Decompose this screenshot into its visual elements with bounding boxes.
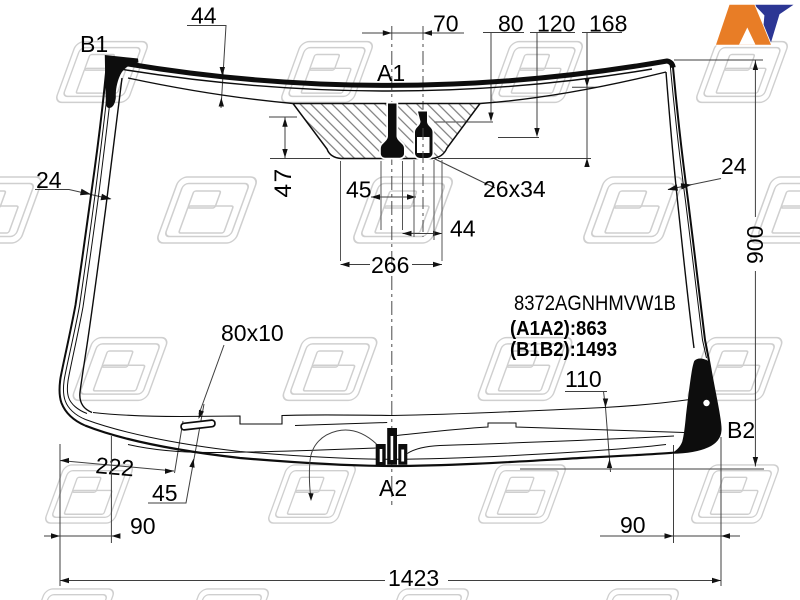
svg-text:44: 44	[191, 3, 217, 29]
svg-text:120: 120	[537, 11, 575, 37]
svg-text:(B1B2):1493: (B1B2):1493	[510, 339, 617, 361]
svg-text:44: 44	[450, 216, 476, 242]
svg-text:A2: A2	[379, 475, 407, 501]
svg-text:80x10: 80x10	[221, 320, 284, 346]
svg-text:47: 47	[270, 167, 297, 197]
svg-text:26x34: 26x34	[483, 176, 546, 202]
svg-text:900: 900	[742, 226, 768, 264]
svg-text:24: 24	[721, 153, 747, 179]
svg-text:24: 24	[36, 167, 62, 193]
svg-text:110: 110	[565, 366, 602, 392]
svg-text:90: 90	[130, 513, 156, 539]
svg-text:168: 168	[589, 11, 627, 37]
svg-text:222: 222	[95, 452, 135, 481]
svg-text:A1: A1	[377, 60, 405, 86]
svg-text:266: 266	[371, 252, 409, 278]
svg-text:8372AGNHMVW1B: 8372AGNHMVW1B	[514, 291, 676, 315]
svg-text:90: 90	[620, 512, 646, 538]
svg-text:1423: 1423	[388, 565, 439, 591]
svg-text:B2: B2	[727, 417, 755, 443]
svg-text:45: 45	[152, 480, 178, 506]
svg-text:70: 70	[433, 11, 459, 37]
svg-text:B1: B1	[80, 31, 108, 57]
svg-text:80: 80	[498, 11, 524, 37]
svg-text:(A1A2):863: (A1A2):863	[510, 318, 607, 340]
svg-text:45: 45	[346, 177, 372, 203]
